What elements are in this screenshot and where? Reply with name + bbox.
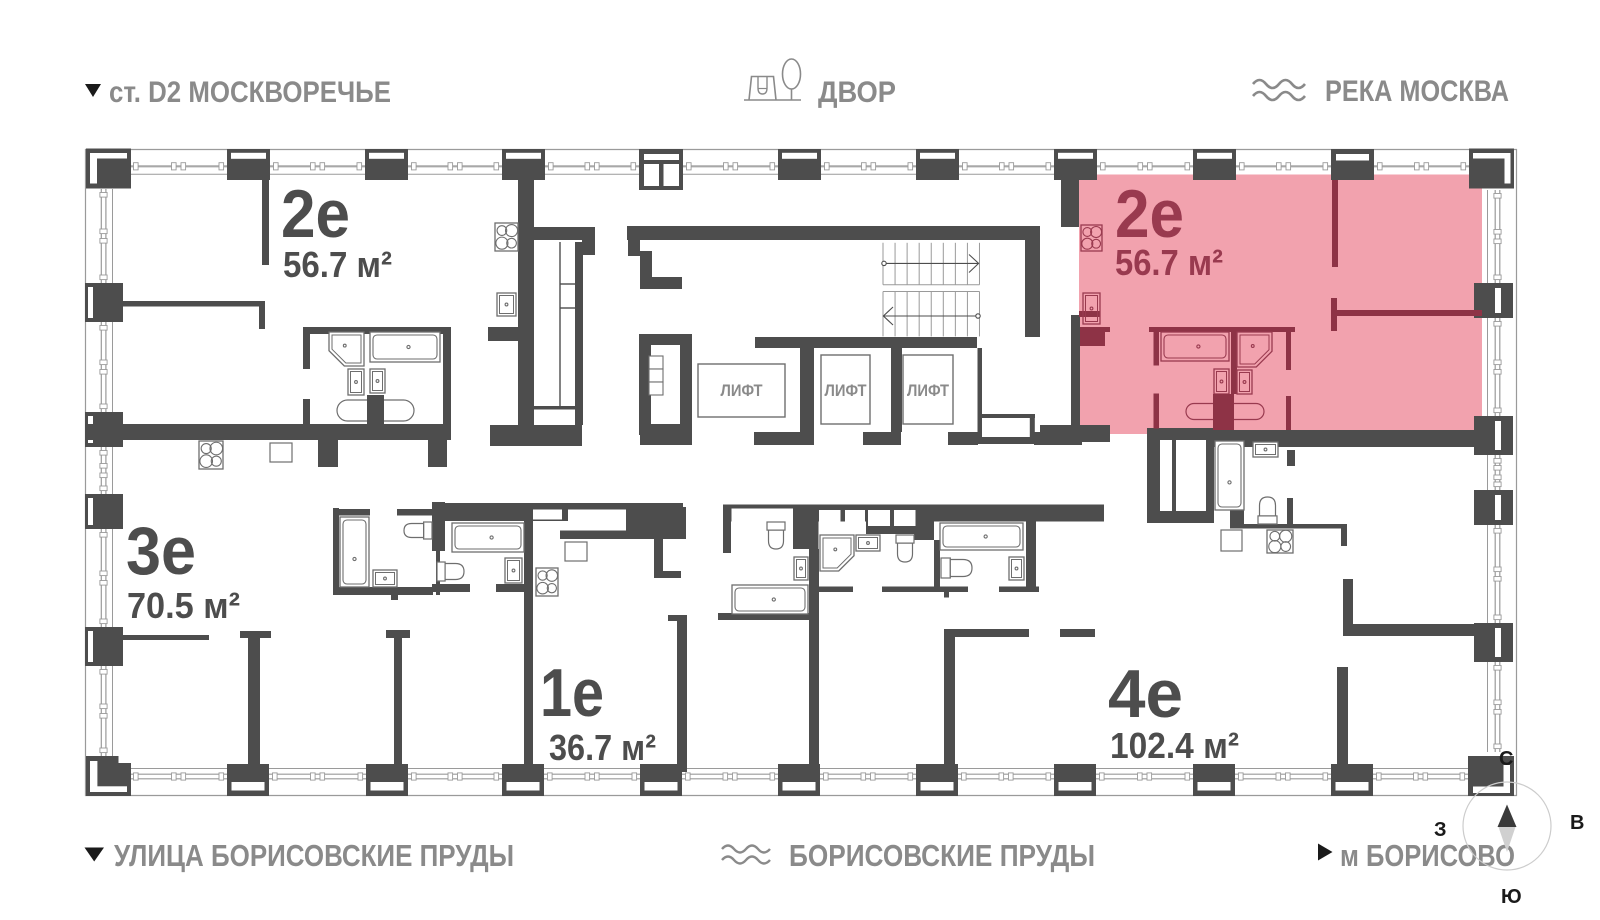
svg-text:м БОРИСОВО: м БОРИСОВО xyxy=(1340,838,1515,873)
svg-text:ЛИФТ: ЛИФТ xyxy=(825,381,868,400)
svg-text:56.7 м²: 56.7 м² xyxy=(283,244,392,285)
svg-text:З: З xyxy=(1434,819,1447,841)
svg-text:ЛИФТ: ЛИФТ xyxy=(721,381,764,400)
svg-text:1е: 1е xyxy=(540,655,604,731)
svg-text:4е: 4е xyxy=(1108,656,1183,732)
svg-text:36.7 м²: 36.7 м² xyxy=(549,727,656,768)
svg-text:3е: 3е xyxy=(126,513,196,589)
svg-text:102.4 м²: 102.4 м² xyxy=(1110,725,1239,766)
svg-text:УЛИЦА БОРИСОВСКИЕ ПРУДЫ: УЛИЦА БОРИСОВСКИЕ ПРУДЫ xyxy=(114,838,514,873)
svg-text:ст. D2 МОСКВОРЕЧЬЕ: ст. D2 МОСКВОРЕЧЬЕ xyxy=(109,76,391,109)
svg-text:2е: 2е xyxy=(281,176,350,252)
svg-text:Ю: Ю xyxy=(1501,886,1522,908)
svg-text:ДВОР: ДВОР xyxy=(818,76,896,109)
svg-text:В: В xyxy=(1570,812,1584,834)
svg-text:2е: 2е xyxy=(1115,176,1184,252)
svg-text:ЛИФТ: ЛИФТ xyxy=(907,381,950,400)
svg-text:70.5 м²: 70.5 м² xyxy=(127,585,240,626)
svg-text:56.7 м²: 56.7 м² xyxy=(1115,242,1223,283)
svg-text:С: С xyxy=(1499,748,1513,770)
svg-text:БОРИСОВСКИЕ ПРУДЫ: БОРИСОВСКИЕ ПРУДЫ xyxy=(789,838,1095,873)
svg-text:РЕКА МОСКВА: РЕКА МОСКВА xyxy=(1325,75,1509,108)
